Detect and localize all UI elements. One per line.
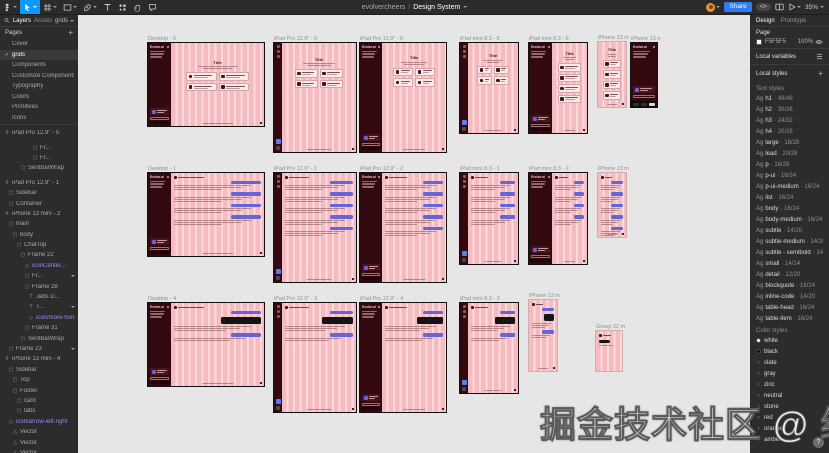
mock-bar (555, 189, 571, 190)
frame-label[interactable]: iPad Pro 12.9" - 6 (360, 36, 403, 42)
mock-user-bubble (611, 181, 623, 185)
breadcrumb: evolvercheers / Design System (362, 4, 468, 11)
mock-corner-icon (260, 122, 263, 125)
page-item[interactable]: Cover (0, 39, 78, 50)
mock-chat-header (601, 176, 623, 179)
left-panel-header: Layers Assets grids (0, 15, 78, 27)
layer-label: iPad Pro 12.9" - 1 (12, 180, 75, 186)
mock-footer-button (160, 381, 169, 384)
text-style-row[interactable]: Aglarge· 18/28 (756, 137, 823, 148)
mock-chat-exchange (555, 181, 584, 191)
mock-bar (423, 83, 430, 84)
canvas-frame[interactable]: iPad Pro 12.9" - 2Evolve.ai (359, 172, 447, 283)
canvas-frame[interactable]: iPhone 13 min... (597, 172, 627, 238)
mock-chat-exchange (471, 192, 515, 202)
pen-tool-button[interactable] (80, 0, 100, 14)
layer-row[interactable]: ▢Fr... (0, 142, 78, 152)
mock-dark-menu: Evolve.ai (631, 43, 657, 107)
mock-bar (327, 83, 339, 84)
library-icon[interactable] (775, 3, 784, 11)
layer-row[interactable]: ▢Top (0, 375, 78, 385)
layer-row[interactable]: #iPhone 13 mini - 4 (0, 354, 78, 364)
canvas-frame[interactable]: iPad mini 8.3 - 1 (459, 172, 519, 265)
mock-card-lines (226, 86, 246, 89)
style-name: subtle-medium (765, 239, 804, 245)
frame-label[interactable]: iPad mini 8.3 - 1 (460, 166, 500, 172)
canvas-frame[interactable]: Desktop - 4Evolve.ai (147, 302, 265, 387)
layer-label: iPad Pro 12.9" - 5 (12, 130, 75, 136)
tool-group-right: Share </> 35% (706, 0, 829, 14)
mock-nav-item (531, 181, 546, 182)
text-style-row[interactable]: Agp· 16/28 (756, 159, 823, 170)
canvas[interactable]: Desktop - 5Evolve.aiTitleiPad Pro 12.9" … (78, 15, 750, 453)
mock-footer-button (362, 277, 371, 280)
page-color-row[interactable]: F5F5F5 100% (756, 39, 823, 45)
mock-card-avatar (560, 76, 564, 80)
mock-bar (601, 199, 618, 200)
mock-nav-item (531, 56, 543, 57)
mock-collapse-icon (167, 306, 169, 308)
canvas-frame[interactable]: Desktop - 5Evolve.aiTitle (147, 42, 265, 127)
style-size: · 14/20 (796, 294, 815, 300)
page-dropdown[interactable]: grids (55, 18, 74, 24)
frame-label[interactable]: iPad Pro 12.9" - 4 (360, 296, 403, 302)
eye-icon[interactable] (815, 39, 823, 45)
text-style-row[interactable]: Agtable-item· 16/24 (756, 313, 823, 324)
text-style-row[interactable]: Agp-ui· 16/24 (756, 170, 823, 181)
canvas-frame[interactable]: iPad Pro 12.9" - 5Title (273, 42, 357, 153)
canvas-frame[interactable]: iPad mini 8.3 - 6Evolve.aiTitle (528, 42, 588, 134)
mock-bar (599, 345, 613, 346)
canvas-frame[interactable]: iPad Pro 12.9" - 3 (273, 302, 357, 413)
mock-user-card (531, 246, 550, 253)
mock-corner-icon (260, 382, 263, 385)
mock-chat-exchange (385, 333, 443, 341)
mock-card-avatar (496, 68, 500, 72)
color-style-row[interactable]: white (756, 335, 823, 346)
layer-row[interactable]: ▢Frame 28 (0, 281, 78, 291)
layer-row[interactable]: ▢Frame 31 (0, 323, 78, 333)
mock-card-lines (423, 70, 433, 73)
comment-tool-button[interactable] (145, 0, 160, 14)
layer-row[interactable]: ▢SentBarWrap (0, 333, 78, 343)
mock-nav-item (150, 56, 162, 57)
layer-row[interactable]: TJabs D... (0, 292, 78, 302)
tab-prototype[interactable]: Prototype (781, 18, 807, 24)
mock-bar (610, 94, 617, 95)
layer-label: Vector (20, 429, 75, 435)
add-style-button[interactable]: + (818, 69, 823, 78)
layer-row[interactable]: ▢Sidebar (0, 365, 78, 375)
layer-row[interactable]: ◇iconCenter... (0, 261, 78, 271)
mock-bar (565, 89, 575, 90)
page-color-hex[interactable]: F5F5F5 (765, 39, 786, 45)
move-tool-button[interactable] (20, 0, 40, 14)
mock-user-bubble (574, 181, 584, 185)
page-item[interactable]: Components (0, 60, 78, 71)
layer-row[interactable]: ▢card (0, 396, 78, 406)
mock-bar (555, 224, 571, 225)
text-style-row[interactable]: Agbody· 16/24 (756, 203, 823, 214)
color-style-row[interactable]: ›red (756, 412, 823, 423)
text-style-row[interactable]: Aglist· 16/24 (756, 192, 823, 203)
layer-row[interactable]: △Vector (0, 448, 78, 453)
mock-nav-item (362, 181, 377, 182)
canvas-frame[interactable]: iPad Pro 12.9" - 1 (273, 172, 357, 283)
mock-bar (194, 88, 208, 89)
frame-label[interactable]: iPad Pro 12.9" - 1 (274, 166, 317, 172)
page-item[interactable]: Icons (0, 113, 78, 124)
layer-label: Top (20, 377, 75, 383)
mock-card-lines (565, 97, 579, 100)
mock-content (382, 303, 446, 412)
zoom-level: 35% (805, 4, 818, 11)
frame-label[interactable]: Desktop - 5 (148, 36, 176, 42)
mock-card-lines (157, 240, 168, 243)
mock-card-lines (423, 81, 433, 84)
layer-row[interactable]: ▢Footer (0, 385, 78, 395)
color-style-name: gray (764, 371, 776, 377)
share-button[interactable]: Share (724, 2, 751, 13)
mock-chat-header (471, 176, 515, 179)
avatar (706, 3, 715, 12)
mock-bar (601, 201, 613, 202)
mock-bar (285, 326, 345, 327)
color-style-row[interactable]: ›neutral (756, 390, 823, 401)
mock-logo-text: Evolve.ai (531, 175, 545, 179)
frame-label[interactable]: iPhone 13 min... (598, 166, 629, 172)
mock-user-bubble (330, 192, 353, 196)
pages-header-label: Pages (5, 30, 22, 36)
mock-app-icon (152, 370, 156, 374)
mock-bar (285, 201, 322, 202)
mock-upgrade-button (531, 255, 550, 258)
page-item[interactable]: Primitives (0, 102, 78, 113)
layer-row[interactable]: #iPad Pro 12.9" - 1 (0, 178, 78, 188)
chevron-down-icon[interactable] (71, 306, 75, 308)
mock-bar (603, 335, 611, 336)
text-style-row[interactable]: Agp-ui-medium· 16/24 (756, 181, 823, 192)
frame-label[interactable]: iPad Pro 12.9" - 5 (274, 36, 317, 42)
mock-suggestion-card (477, 66, 492, 75)
mock-collapse-icon (167, 46, 169, 48)
mock-upgrade-button (362, 143, 380, 146)
mock-chat-header (174, 306, 261, 309)
layer-row[interactable]: ▢main (0, 219, 78, 229)
layer-row[interactable]: △Vector (0, 437, 78, 447)
layer-row[interactable]: ▢tabs (0, 406, 78, 416)
color-style-row[interactable]: ›zinc (756, 379, 823, 390)
styles-scroll-area: Text styles Agh1· 48/48Agh2· 30/36Agh3· … (750, 82, 829, 453)
layer-row[interactable]: △Vector (0, 427, 78, 437)
mock-bar (285, 185, 345, 186)
mock-disclaimer-bar (202, 383, 234, 384)
frame-body (274, 173, 356, 282)
present-button[interactable] (788, 3, 801, 11)
text-style-row[interactable]: Agh4· 20/28 (756, 126, 823, 137)
mock-content (282, 303, 356, 412)
style-size: · 20/28 (774, 129, 793, 135)
mock-bar (174, 185, 250, 186)
mock-suggestion-card (603, 70, 621, 79)
mock-card-avatar (605, 73, 609, 77)
mock-bar (385, 199, 430, 200)
mock-chat-exchange (385, 181, 443, 191)
mock-bar (423, 81, 432, 82)
main-menu-button[interactable] (0, 0, 20, 14)
local-styles-label: Local styles (756, 71, 787, 77)
mock-card-lines (302, 83, 315, 86)
mock-bar (285, 220, 345, 221)
mock-bar (471, 220, 510, 221)
color-styles-list: whiteblack›slate›gray›zinc›neutral›stone… (756, 335, 823, 445)
mock-user-bubble (231, 192, 261, 196)
canvas-frame[interactable]: iPhone 13 mini ...Evolve.ai (630, 42, 658, 108)
layer-row[interactable]: ▢body (0, 230, 78, 240)
mock-bar (385, 338, 432, 339)
layer-row[interactable]: #iPad Pro 12.9" - 5 (0, 128, 78, 138)
frame-tool-button[interactable] (40, 0, 60, 14)
frame-label[interactable]: iPad mini 8.3 - 6 (529, 36, 569, 42)
hand-tool-button[interactable] (130, 0, 145, 14)
canvas-frame[interactable]: iPhone 13 min...Title (597, 41, 627, 108)
mock-collapse-icon (378, 176, 380, 178)
variables-icon (816, 53, 823, 60)
mock-card-avatar (605, 62, 609, 66)
mock-bar (601, 235, 613, 236)
frame-label[interactable]: iPhone 13 min... (598, 35, 629, 41)
frame-body: Evolve.aiTitle (148, 43, 264, 126)
page-color-swatch[interactable] (756, 39, 762, 45)
folder-chevron-icon: › (756, 360, 761, 366)
layer-row[interactable]: ▢ChatTop (0, 240, 78, 250)
mock-bar (285, 224, 322, 225)
frame-label[interactable]: iPad Pro 12.9" - 2 (360, 166, 403, 172)
local-variables-row[interactable]: Local variables (750, 49, 829, 65)
text-style-row[interactable]: Agbody-medium· 16/24 (756, 214, 823, 225)
tool-group-left (0, 0, 160, 14)
canvas-frame[interactable]: iPad mini 8.3 - 2Evolve.ai (528, 172, 588, 265)
mock-chat-exchange (471, 204, 515, 214)
mock-rail-bottom-icon (462, 387, 466, 391)
color-style-row[interactable]: ›orange (756, 423, 823, 434)
mock-user-bubble (574, 192, 584, 196)
mock-bar (226, 77, 240, 78)
color-style-row[interactable]: ›stone (756, 401, 823, 412)
mock-bar (369, 398, 375, 399)
text-style-row[interactable]: Agh1· 48/48 (756, 93, 823, 104)
chevron-down-icon (716, 6, 720, 8)
frame-body: Evolve.aiTitle (529, 43, 587, 133)
mock-bar (385, 189, 417, 190)
mock-card-avatar (189, 75, 193, 79)
breadcrumb-team[interactable]: evolvercheers (362, 4, 406, 11)
chevron-down-icon (33, 6, 37, 8)
mock-footer-button (372, 277, 381, 280)
mock-chat-exchange (601, 181, 623, 191)
text-style-row[interactable]: Agsmall· 14/14 (756, 258, 823, 269)
text-style-row[interactable]: Agh3· 24/32 (756, 115, 823, 126)
page-dropdown-label: grids (55, 18, 68, 24)
folder-chevron-icon: › (756, 415, 761, 421)
mock-sidebar: Evolve.ai (529, 173, 552, 264)
color-swatch (756, 349, 761, 354)
mock-rail-selected-icon (462, 380, 467, 385)
page-item[interactable]: Customize Components (0, 71, 78, 82)
mock-upgrade-button (150, 247, 169, 250)
tab-layers[interactable]: Layers (13, 18, 31, 24)
page-item[interactable]: Typography (0, 81, 78, 92)
text-style-row[interactable]: Agh2· 30/36 (756, 104, 823, 115)
mock-bar (174, 212, 222, 213)
mock-card-avatar (322, 82, 326, 86)
layer-row[interactable]: #iPhone 13 mini - 2 (0, 209, 78, 219)
add-page-button[interactable]: + (68, 29, 73, 37)
dev-mode-toggle[interactable]: </> (756, 3, 771, 11)
frame-label[interactable]: iPhone 13 mini (529, 293, 560, 299)
mock-card-avatar (480, 68, 484, 72)
mock-bar (555, 220, 580, 221)
mock-corner-icon (442, 408, 445, 411)
canvas-frame[interactable]: iPad Pro 12.9" - 4Evolve.ai (359, 302, 447, 413)
layer-label: SentBarWrap (28, 165, 75, 171)
layer-row[interactable]: ▢Fr... (0, 271, 78, 281)
mock-user-bubble (423, 311, 443, 315)
chevron-down-icon[interactable] (71, 275, 75, 277)
text-style-row[interactable]: Agblockquote· 16/24 (756, 280, 823, 291)
mock-disclaimer-bar (564, 130, 576, 131)
layer-row[interactable]: ◇icon/arrow-left-right (0, 417, 78, 427)
color-style-row[interactable]: ›gray (756, 368, 823, 379)
style-name: lead (765, 151, 776, 157)
page-color-opacity[interactable]: 100% (798, 39, 813, 45)
page-section: Page F5F5F5 100% (750, 27, 829, 49)
layer-row[interactable]: TT... (0, 302, 78, 312)
layer-row[interactable]: ▢Sidebar (0, 188, 78, 198)
mock-context-menu (417, 317, 444, 324)
resources-tool-button[interactable] (115, 0, 130, 14)
mock-bar (226, 88, 240, 89)
mock-bar (538, 119, 545, 120)
page-check-icon: ✓ (4, 52, 10, 58)
text-tool-button[interactable] (100, 0, 115, 14)
help-button[interactable]: ? (813, 437, 824, 448)
frame-label[interactable]: iPad mini 8.3 - 2 (529, 166, 569, 172)
frame-body (596, 331, 622, 371)
layer-row[interactable]: ▢Fr... (0, 153, 78, 163)
mock-title: Title (601, 47, 623, 52)
style-size: · 16/24 (780, 206, 799, 212)
mock-bar (385, 185, 436, 186)
frame-label[interactable]: iPad mini 8.3 - 5 (460, 36, 500, 42)
mock-chat-exchange (174, 181, 261, 191)
mock-bar (203, 68, 233, 69)
frame-label[interactable]: iPad Pro 12.9" - 3 (274, 296, 317, 302)
text-style-row[interactable]: Aginline-code· 14/20 (756, 291, 823, 302)
canvas-frame[interactable]: iPad mini 8.3 - 5Title (459, 42, 519, 134)
mock-nav-item (150, 183, 164, 184)
mock-bar (178, 307, 204, 308)
frame-label[interactable]: Desktop - 1 (148, 166, 176, 172)
canvas-frame[interactable]: Desktop - 1Evolve.ai (147, 172, 265, 257)
layer-label: iPhone 13 mini - 2 (12, 211, 75, 217)
color-style-row[interactable]: ›slate (756, 357, 823, 368)
mock-suggestion-card (415, 68, 435, 77)
shape-tool-button[interactable] (60, 0, 80, 14)
file-title[interactable]: Design System (413, 4, 460, 11)
text-style-row[interactable]: Agsubtle-medium· 14/20 (756, 236, 823, 247)
mock-bar (532, 327, 545, 328)
mock-upgrade-button (362, 273, 380, 276)
page-item[interactable]: Colors (0, 92, 78, 103)
frame-label[interactable]: Desktop - 4 (148, 296, 176, 302)
tab-design[interactable]: Design (756, 18, 775, 24)
mock-card-lines (565, 66, 579, 69)
mock-card-lines (485, 68, 490, 71)
tab-assets[interactable]: Assets (34, 18, 52, 24)
layer-row[interactable]: ▢Frame 23 (0, 344, 78, 354)
zoom-menu[interactable]: 35% (805, 4, 824, 11)
text-style-row[interactable]: Agsubtle· 14/20 (756, 225, 823, 236)
frame-label[interactable]: Group 32 mm... (596, 324, 625, 330)
mock-bar (285, 231, 345, 232)
mock-bar (607, 54, 617, 55)
layer-row[interactable]: ◇icon/more-horiz... (0, 313, 78, 323)
account-menu[interactable] (706, 3, 720, 12)
canvas-frame[interactable]: iPad Pro 12.9" - 6Evolve.aiTitle (359, 42, 447, 153)
page-item[interactable]: ✓grids (0, 50, 78, 61)
mock-rail-icon (277, 315, 280, 318)
mock-bar (174, 340, 230, 341)
frame-label[interactable]: iPad mini 8.3 - 3 (460, 296, 500, 302)
canvas-frame[interactable]: iPhone 13 mini (528, 299, 558, 372)
layer-label: card (24, 398, 75, 404)
canvas-frame[interactable]: iPad mini 8.3 - 3 (459, 302, 519, 394)
layer-row[interactable]: ▢SentBarWrap (0, 163, 78, 173)
frame-label[interactable]: iPhone 13 mini ... (631, 36, 660, 42)
style-preview: Ag (756, 162, 763, 168)
mock-disclaimer-bar (202, 253, 234, 254)
text-style-row[interactable]: Aglead· 20/28 (756, 148, 823, 159)
mock-bar (610, 85, 616, 86)
mock-suggestion-cards (295, 69, 344, 88)
layer-row[interactable]: ▢Frame 22 (0, 250, 78, 260)
color-style-name: red (764, 415, 773, 421)
style-preview: Ag (756, 140, 763, 146)
mock-user-bubble (423, 181, 443, 185)
chevron-down-icon[interactable] (463, 6, 467, 8)
mock-user-bubble (423, 227, 443, 231)
search-icon[interactable] (4, 17, 10, 24)
mock-bar (157, 242, 164, 243)
canvas-frame[interactable]: Group 32 mm... (595, 330, 623, 372)
mock-bar (285, 187, 338, 188)
style-name: body (765, 206, 778, 212)
text-style-row[interactable]: Agtable-head· 16/24 (756, 302, 823, 313)
mock-title: Title (174, 60, 261, 65)
text-style-row[interactable]: Agsubtle - semibold· 14/20 (756, 247, 823, 258)
style-size: · 16/24 (777, 173, 796, 179)
layer-row[interactable]: ▢Container (0, 198, 78, 208)
group-icon: ▢ (24, 284, 30, 290)
color-style-row[interactable]: black (756, 346, 823, 357)
group-icon: ▢ (8, 190, 14, 196)
mock-bar (555, 212, 571, 213)
chevron-down-icon[interactable] (71, 348, 75, 350)
mock-bar (289, 307, 309, 308)
style-preview: Ag (756, 206, 763, 212)
text-style-row[interactable]: Agdetail· 12/20 (756, 269, 823, 280)
